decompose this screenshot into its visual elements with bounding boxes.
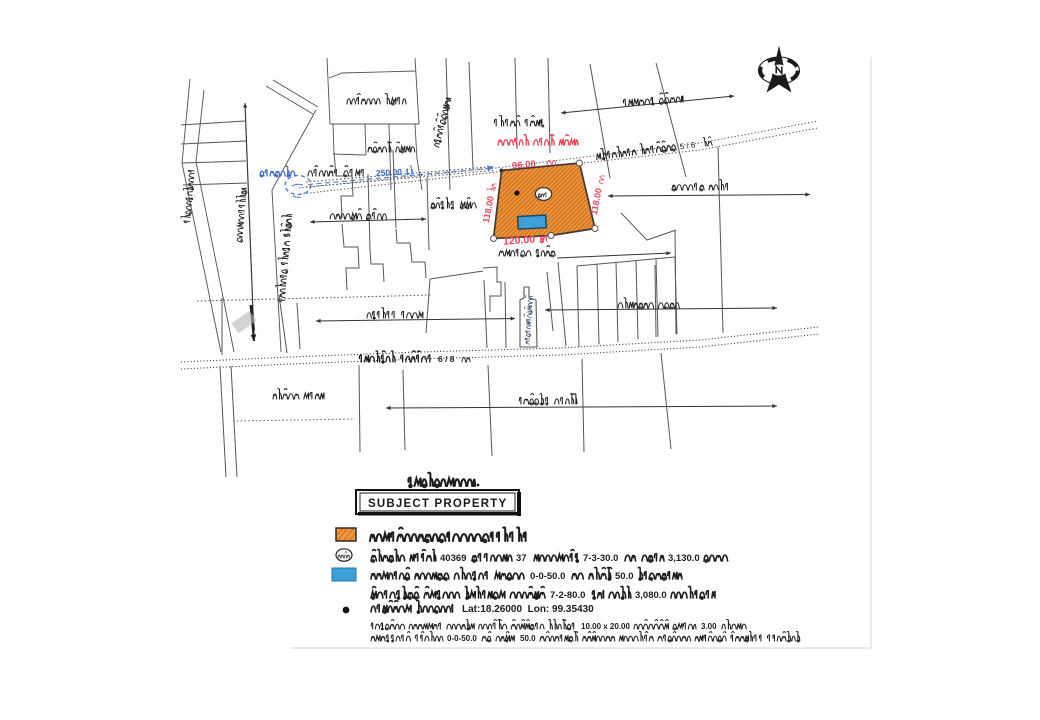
svg-text:50.0: 50.0 xyxy=(520,634,536,643)
svg-text:50.0: 50.0 xyxy=(615,571,634,582)
svg-text:40369: 40369 xyxy=(440,553,466,564)
svg-text:10.00 x 20.00: 10.00 x 20.00 xyxy=(581,622,630,631)
svg-text:37: 37 xyxy=(516,553,527,564)
svg-text:118.00: 118.00 xyxy=(481,195,496,223)
svg-text:250.00: 250.00 xyxy=(376,167,403,178)
svg-text:120.00: 120.00 xyxy=(503,234,536,248)
svg-text:5 / 6: 5 / 6 xyxy=(283,222,293,237)
svg-text:5 / 6: 5 / 6 xyxy=(679,140,696,151)
svg-text:7-3-30.0: 7-3-30.0 xyxy=(583,553,618,564)
svg-text:0-0-50.0: 0-0-50.0 xyxy=(530,571,565,582)
svg-text:96.00: 96.00 xyxy=(512,159,537,172)
svg-text:3,080.0: 3,080.0 xyxy=(635,590,667,601)
svg-text:SUBJECT PROPERTY: SUBJECT PROPERTY xyxy=(368,498,507,510)
svg-text:0-0-50.0: 0-0-50.0 xyxy=(447,634,477,643)
svg-text:118.00: 118.00 xyxy=(589,187,604,215)
svg-text:7-2-80.0: 7-2-80.0 xyxy=(550,590,585,601)
svg-text:3,130.0: 3,130.0 xyxy=(668,553,700,564)
svg-text:Lat:18.26000 Lon: 99.35430: Lat:18.26000 Lon: 99.35430 xyxy=(462,604,594,615)
svg-text:6 / 8: 6 / 8 xyxy=(438,354,455,364)
svg-text:3.00: 3.00 xyxy=(701,622,717,631)
